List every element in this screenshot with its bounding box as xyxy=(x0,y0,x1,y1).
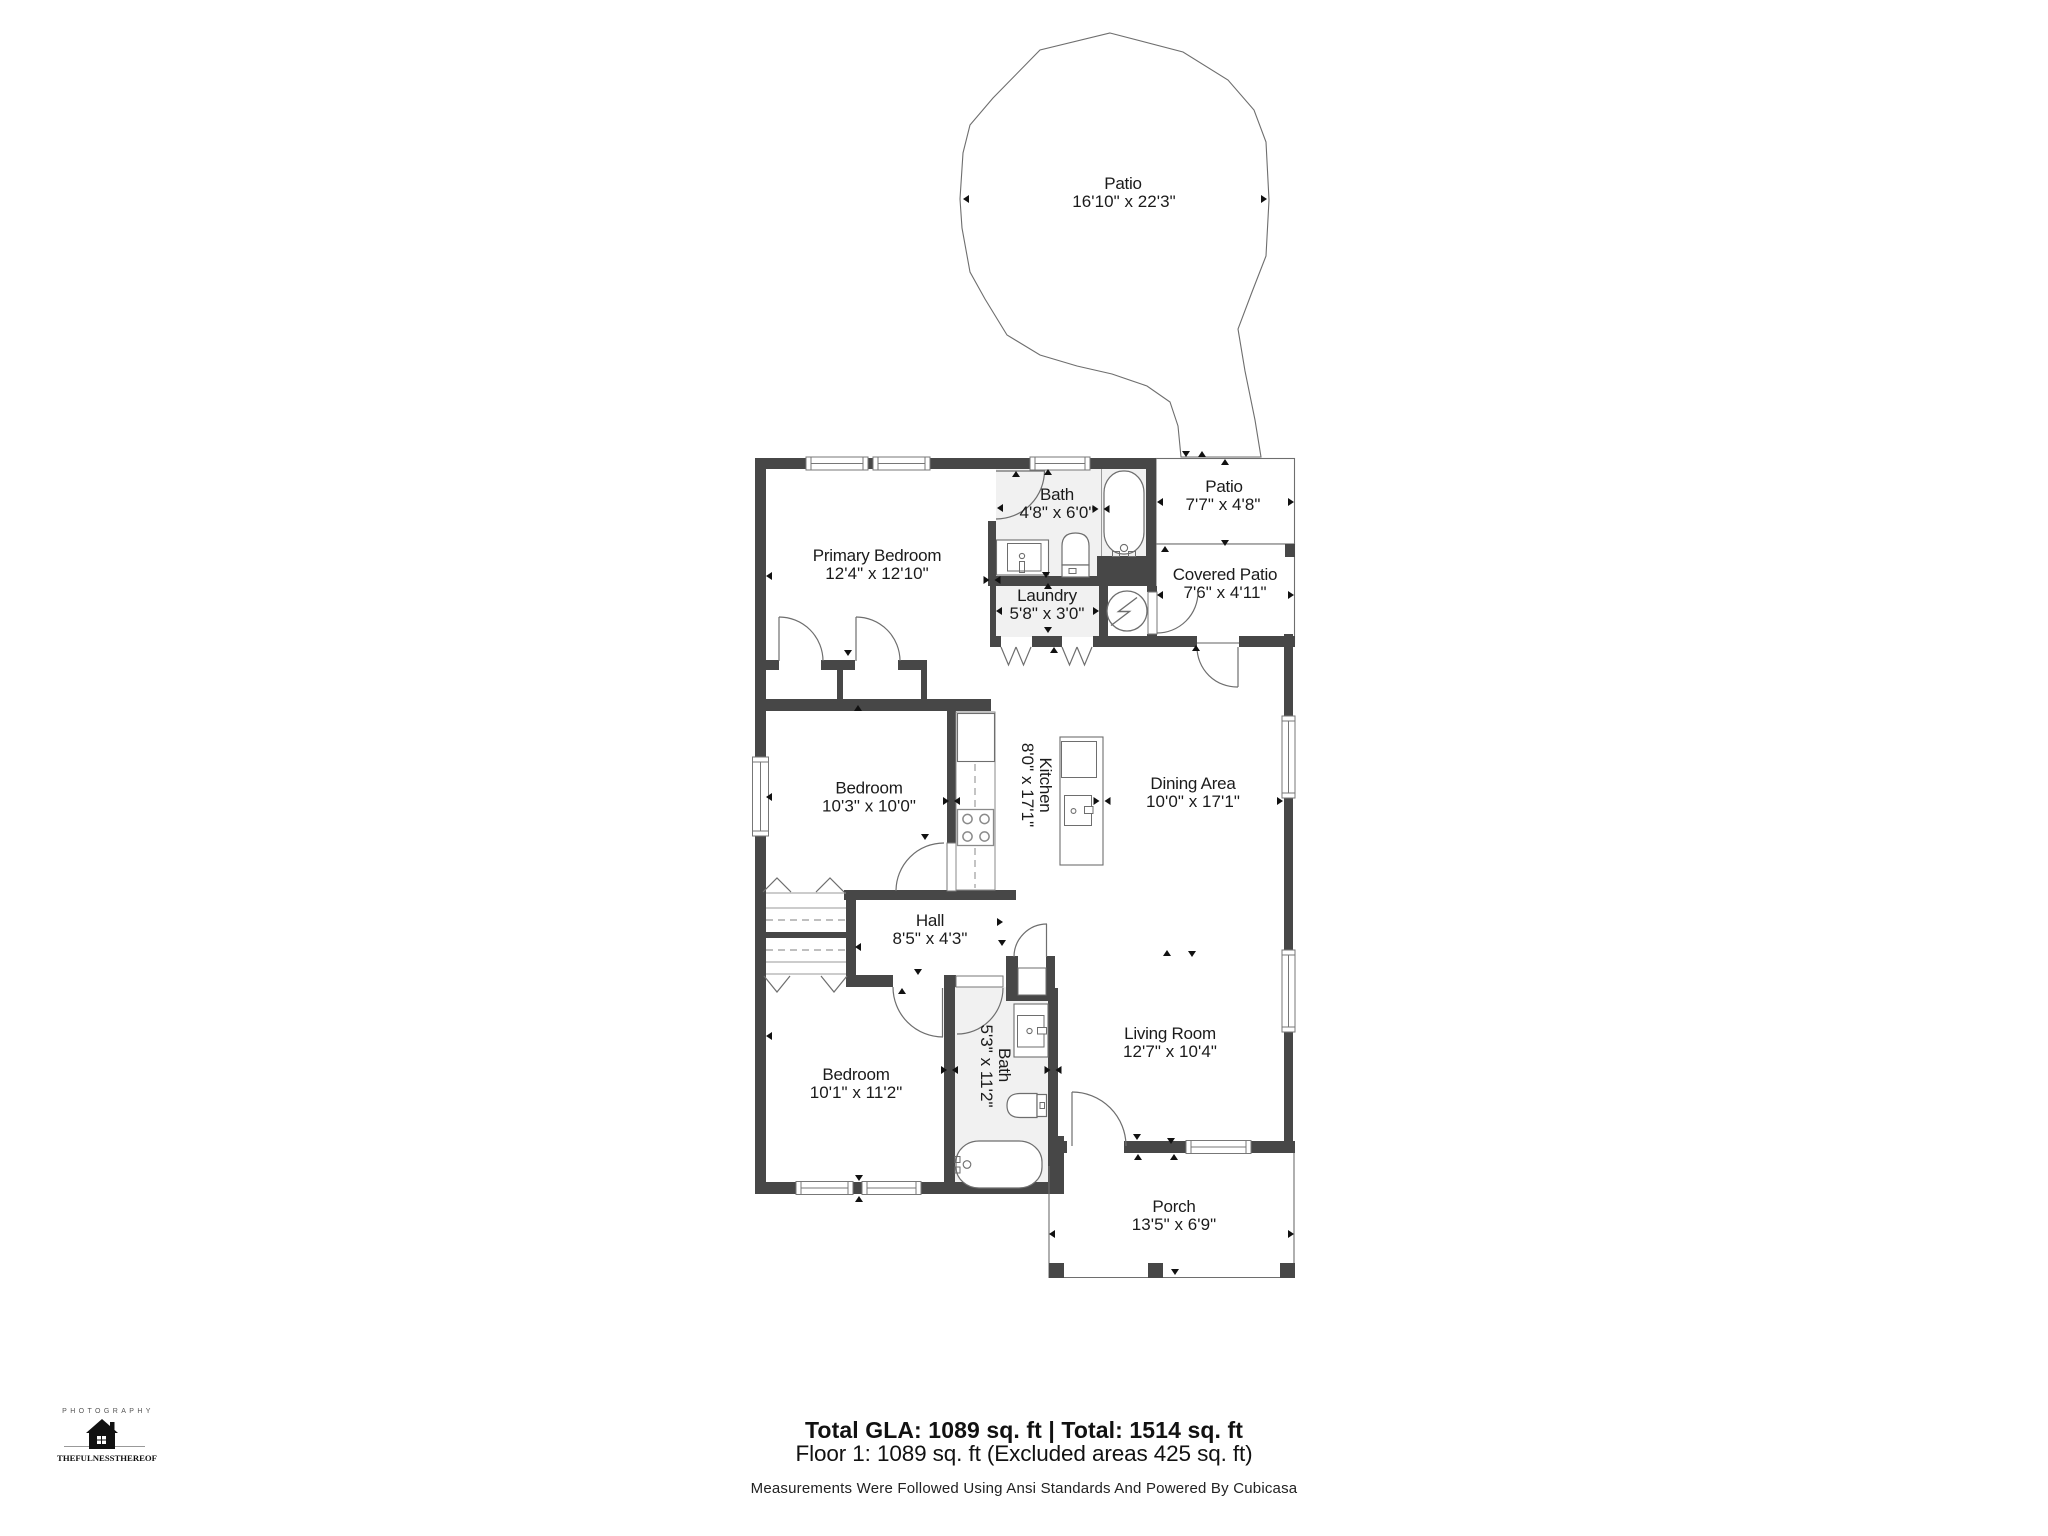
svg-text:16'10" x 22'3": 16'10" x 22'3" xyxy=(1072,192,1175,211)
svg-text:Dining Area: Dining Area xyxy=(1150,774,1236,793)
svg-text:13'5" x 6'9": 13'5" x 6'9" xyxy=(1132,1215,1216,1234)
svg-text:Patio: Patio xyxy=(1205,477,1243,496)
svg-text:Bath: Bath xyxy=(1040,485,1074,504)
svg-text:5'8" x 3'0": 5'8" x 3'0" xyxy=(1010,604,1085,623)
svg-text:Hall: Hall xyxy=(916,911,944,930)
svg-text:Bedroom: Bedroom xyxy=(835,779,902,798)
svg-text:8'0" x 17'1": 8'0" x 17'1" xyxy=(1018,743,1037,827)
svg-text:PHOTOGRAPHY: PHOTOGRAPHY xyxy=(62,1408,154,1415)
svg-text:Porch: Porch xyxy=(1152,1197,1195,1216)
svg-text:Bedroom: Bedroom xyxy=(822,1065,889,1084)
svg-text:7'7" x 4'8": 7'7" x 4'8" xyxy=(1186,495,1261,514)
svg-text:7'6" x 4'11": 7'6" x 4'11" xyxy=(1183,583,1266,602)
svg-text:4'8" x 6'0": 4'8" x 6'0" xyxy=(1020,503,1095,522)
svg-text:5'3" x 11'2": 5'3" x 11'2" xyxy=(977,1024,996,1107)
svg-text:12'7" x 10'4": 12'7" x 10'4" xyxy=(1123,1042,1217,1061)
svg-text:12'4" x 12'10": 12'4" x 12'10" xyxy=(825,564,928,583)
svg-text:10'3" x 10'0": 10'3" x 10'0" xyxy=(822,797,916,816)
svg-text:Patio: Patio xyxy=(1104,174,1142,193)
svg-text:Covered Patio: Covered Patio xyxy=(1173,565,1277,584)
svg-text:Bath: Bath xyxy=(995,1048,1014,1082)
svg-text:10'0" x 17'1": 10'0" x 17'1" xyxy=(1146,792,1240,811)
svg-text:10'1" x 11'2": 10'1" x 11'2" xyxy=(810,1083,903,1102)
svg-text:Kitchen: Kitchen xyxy=(1036,758,1055,813)
svg-text:THEFULNESSTHEREOF: THEFULNESSTHEREOF xyxy=(57,1453,157,1463)
svg-text:Living Room: Living Room xyxy=(1124,1024,1216,1043)
svg-text:8'5" x 4'3": 8'5" x 4'3" xyxy=(893,929,968,948)
svg-text:Primary Bedroom: Primary Bedroom xyxy=(813,546,942,565)
